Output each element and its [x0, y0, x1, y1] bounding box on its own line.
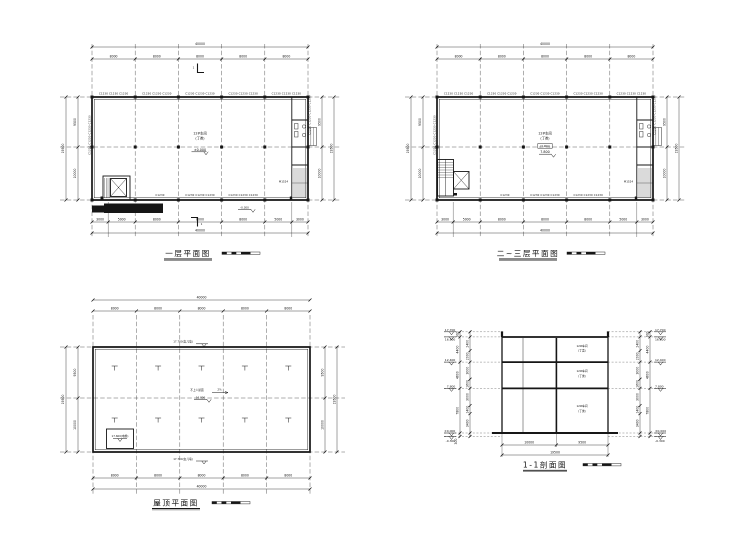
- plan1-section-marks: 1 1: [191, 64, 204, 227]
- svg-text:-0.300: -0.300: [655, 439, 665, 443]
- dim-bottom: 9500: [578, 440, 586, 444]
- svg-text:12.400: 12.400: [655, 358, 666, 362]
- dim-right-total: 19500: [330, 144, 334, 154]
- dim-seg: 5000: [274, 217, 282, 221]
- dim-sub: 3000: [636, 367, 640, 375]
- roof-drain-icon: [155, 418, 161, 423]
- svg-text:16.800: 16.800: [445, 338, 456, 342]
- dim-sub: 1600: [636, 380, 640, 388]
- dim-right: 10000: [320, 420, 324, 430]
- roof-plan: 40000 8000 8000 8000 8000 8000 8000 8000…: [60, 295, 345, 510]
- roof-elevator-shaft: 17.600(电梯): [107, 429, 134, 449]
- dim-sub: 1400: [466, 406, 470, 414]
- window-tags: C1230 C1230 C1230: [228, 92, 258, 96]
- dim-storey: 4600: [456, 371, 460, 379]
- dim-bay: 8000: [154, 473, 162, 477]
- plan2-skeleton: [405, 42, 685, 238]
- dim-sub: 2400: [466, 340, 470, 348]
- roof-slope: 2%: [217, 388, 222, 392]
- dim-bay: 8000: [241, 473, 249, 477]
- dim-total-bottom: 40000: [197, 484, 207, 488]
- roof-title: 屋顶平面图: [153, 499, 198, 508]
- room-name: 12#车间: [576, 369, 587, 373]
- window-tags: C1230 C1230 C1230: [272, 92, 302, 96]
- dim-sub: 3000: [636, 393, 640, 401]
- window-tags: C1230 C1230 C1230: [185, 193, 215, 197]
- plan1-stair-elevator: [101, 176, 131, 200]
- window-tags: C1230 C1230 C1230: [228, 193, 258, 197]
- dim-bay: 8000: [198, 473, 206, 477]
- window-tags: C1230 C1230 C1230: [142, 92, 172, 96]
- dim-bay: 8000: [284, 306, 292, 310]
- roof-elevation: 16.800: [196, 395, 206, 399]
- dim-storey: 4600: [646, 371, 650, 379]
- roof-drain-icon: [199, 366, 205, 371]
- plan2-elevation: 7.800: [540, 150, 549, 154]
- cad-canvas: 40000 8000 8000 8000 8000 8000 3000 5000…: [0, 0, 747, 537]
- plan2-title: 二~三层平面图: [497, 249, 559, 258]
- svg-text:-0.300: -0.300: [446, 439, 456, 443]
- plan1-scale-bar: [222, 252, 260, 254]
- roof-drains: [112, 366, 292, 423]
- dim-sub: 3000: [466, 393, 470, 401]
- svg-text:±0.000: ±0.000: [444, 429, 455, 433]
- dim-sub: 3000: [466, 367, 470, 375]
- dim-sub: 2000: [466, 352, 470, 360]
- roof-drain-icon: [155, 366, 161, 371]
- dim-sub: 1400: [636, 406, 640, 414]
- window-tags: C1230 C1230 C1230: [185, 92, 215, 96]
- dim-bay: 8000: [239, 54, 247, 58]
- plan2-scale-bar: [567, 252, 605, 254]
- section-levels-left: 17.700 16.800 12.400 7.800 ±0.000 -0.300: [444, 328, 456, 443]
- dim-left: 10000: [73, 420, 77, 430]
- dim-left: 9500: [73, 369, 77, 377]
- dim-sub: 1600: [466, 380, 470, 388]
- svg-text:17.700: 17.700: [445, 328, 456, 332]
- section-1-1: 12#车间 (丁类) 12#车间 (丁类) 12#车间 (丁类) 900 440…: [444, 328, 666, 472]
- dim-seg: 3000: [296, 217, 304, 221]
- svg-text:17.600(电梯): 17.600(电梯): [112, 434, 129, 438]
- roof-drain-icon: [199, 418, 205, 423]
- dim-left-total: 19500: [61, 144, 65, 154]
- dim-storey: 7800: [456, 407, 460, 415]
- dim-storey: 900: [646, 331, 650, 337]
- dim-bay: 8000: [110, 54, 118, 58]
- plan1-title: 一层平面图: [165, 249, 210, 258]
- room-class: (丁类): [578, 349, 585, 353]
- svg-text:7.800: 7.800: [447, 384, 456, 388]
- room-name: 12#车间: [576, 404, 587, 408]
- window-tag: C1230: [155, 193, 164, 197]
- roof-drain-icon: [112, 366, 118, 371]
- dim-bay: 8000: [153, 54, 161, 58]
- window-tags-left: C1230 C1230 C1230 C1230: [87, 115, 91, 155]
- svg-text:12.400: 12.400: [445, 358, 456, 362]
- dim-storey: 4400: [646, 346, 650, 354]
- dim-storey: 7800: [646, 407, 650, 415]
- room-name: 12#车间: [576, 344, 587, 348]
- dim-sub: 3400: [636, 419, 640, 427]
- dim-right: 9500: [318, 118, 322, 126]
- room-class: (丁类): [578, 374, 585, 378]
- dim-bay: 8000: [111, 306, 119, 310]
- roof-drain-icon: [112, 418, 118, 423]
- drawing-sheet: 40000 8000 8000 8000 8000 8000 3000 5000…: [0, 0, 747, 537]
- dim-bay: 8000: [198, 306, 206, 310]
- dim-storey: 900: [456, 331, 460, 337]
- roof-drain-icon: [285, 418, 291, 423]
- dim-total-bottom: 40000: [195, 228, 205, 232]
- plan1-loading-dock: [92, 204, 163, 214]
- roof-note: 不上人屋面: [190, 388, 204, 392]
- dim-right: 10000: [318, 169, 322, 179]
- svg-text:1: 1: [193, 66, 195, 70]
- room-class: (丁类): [578, 409, 585, 413]
- svg-text:7.800: 7.800: [655, 384, 664, 388]
- roof-drain-icon: [242, 418, 248, 423]
- window-tags: C1230 C1230 C1230: [99, 92, 129, 96]
- dim-left-total: 19500: [61, 395, 65, 405]
- dim-left: 9500: [73, 118, 77, 126]
- dim-total-top: 40000: [197, 295, 207, 299]
- room-class: (丁类): [195, 135, 204, 140]
- dim-left: 10000: [73, 169, 77, 179]
- door-tag: M1524: [279, 180, 288, 184]
- section-structure: [492, 332, 618, 457]
- dim-bay: 8000: [154, 306, 162, 310]
- roof-parapet-bottom: 17.700(女儿墙): [173, 457, 193, 461]
- section-title: 1-1剖面图: [523, 460, 567, 470]
- dim-bay: 8000: [196, 54, 204, 58]
- dim-bottom: 10000: [524, 440, 534, 444]
- dim-storey: 4400: [456, 346, 460, 354]
- dim-right: 9500: [320, 369, 324, 377]
- roof-drain-icon: [242, 366, 248, 371]
- plan2-upper-floors: (3.900) 7.800 二~三层平面图: [438, 144, 606, 261]
- dim-seg: 3000: [96, 217, 104, 221]
- dim-sub: 2400: [636, 340, 640, 348]
- dim-seg: 8000: [239, 217, 247, 221]
- plan1-elevation-out: -0.300: [240, 205, 249, 209]
- svg-text:±0.000: ±0.000: [655, 429, 666, 433]
- dim-sub: 3400: [466, 419, 470, 427]
- dim-bay: 8000: [282, 54, 290, 58]
- dim-seg: 5000: [118, 217, 126, 221]
- plan2-stair-elevator: [438, 160, 470, 197]
- roof-scale-bar: [212, 502, 250, 504]
- dim-bay: 8000: [284, 473, 292, 477]
- room-name: 12#车间: [193, 131, 207, 136]
- dim-seg: 8000: [153, 217, 161, 221]
- section-levels-right: 17.700 16.800 12.400 7.800 ±0.000 -0.300: [654, 328, 666, 443]
- plan1-elevation: ±0.000: [194, 148, 206, 152]
- roof-parapet-top: 17.700(女儿墙): [173, 340, 193, 344]
- svg-text:16.800: 16.800: [655, 338, 666, 342]
- svg-text:17.700: 17.700: [655, 328, 666, 332]
- roof-drain-icon: [285, 366, 291, 371]
- svg-text:1: 1: [201, 222, 203, 226]
- section-scale-bar: [583, 464, 621, 466]
- dim-right-total: 19500: [332, 395, 336, 405]
- dim-bay: 8000: [241, 306, 249, 310]
- plan2-elevation-paren: (3.900): [540, 144, 550, 148]
- dim-total-top: 40000: [195, 42, 205, 46]
- dim-bay: 8000: [111, 473, 119, 477]
- dim-bottom-total: 19500: [550, 450, 560, 454]
- dim-sub: 2000: [636, 352, 640, 360]
